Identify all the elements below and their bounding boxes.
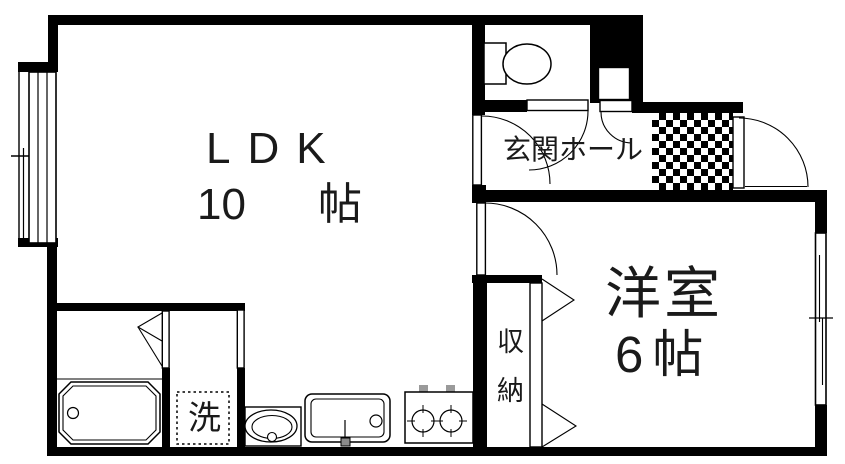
western-room-window — [809, 233, 833, 405]
bifold-door-icon — [138, 313, 162, 341]
hall-door-leaf — [473, 115, 482, 185]
wall-top — [48, 15, 643, 25]
toilet-bowl — [503, 44, 551, 84]
wall-toilet-bottom — [472, 100, 527, 112]
toilet-door-leaf — [527, 100, 588, 111]
bifold-door-fold-line — [138, 327, 162, 366]
room-size-ldk: 10 帖 — [197, 183, 362, 227]
bay-window — [11, 70, 56, 247]
bathtub-icon — [57, 379, 162, 444]
bifold-door-icon — [542, 279, 574, 321]
floor-plan-drawing — [0, 0, 845, 464]
laundry-mark: 洗 — [188, 401, 221, 434]
washbasin-drain — [268, 433, 277, 442]
closet-front-leaf — [530, 283, 542, 447]
toilet-icon — [484, 43, 551, 84]
wall-entrance-top — [632, 102, 743, 113]
sink-faucet — [370, 415, 382, 427]
wall-right-lower — [815, 405, 827, 456]
wall-bath-laundry-divider — [162, 368, 170, 447]
entrance-door-leaf — [733, 117, 744, 188]
utility-box — [598, 67, 630, 100]
room-label-western-room: 洋室 — [605, 266, 723, 322]
stove-body — [405, 392, 473, 443]
wall-laundry-right — [237, 368, 245, 447]
interior-door-swing-icon — [485, 203, 557, 275]
window-frame — [29, 72, 56, 243]
wall-bottom — [47, 447, 827, 456]
bath-door-leaf — [162, 311, 169, 368]
laundry-opening-leaf — [237, 310, 244, 368]
sink-trap — [341, 438, 350, 446]
wall-closet-top — [472, 275, 542, 283]
bathtub-outer — [59, 382, 160, 444]
washbasin-icon — [245, 407, 301, 446]
room-size-western-room: 6帖 — [615, 329, 712, 380]
room-label-entrance-hall: 玄関ホール — [503, 136, 643, 164]
wall-bay-top-cap — [18, 62, 58, 72]
room-size-ldk-value: 10 — [197, 183, 246, 227]
kitchen-sink-icon — [305, 394, 390, 446]
room-label-closet: 収納 — [494, 327, 521, 425]
entrance-door-swing-icon — [739, 118, 808, 187]
wall-bathroom-top — [57, 303, 245, 311]
room-label-ldk: LDK — [206, 127, 343, 171]
room-size-ldk-unit: 帖 — [318, 183, 362, 227]
wall-western-top — [472, 190, 827, 202]
wall-left-lower — [47, 238, 57, 456]
wall-center-seg3 — [473, 275, 487, 447]
western-door-leaf — [477, 203, 486, 275]
floor-plan: LDK 10 帖 玄関ホール 洋室 6帖 収納 洗 — [0, 0, 845, 464]
gas-stove-icon — [405, 385, 473, 443]
sliding-window-icon — [816, 233, 827, 405]
bifold-door-icon — [542, 404, 576, 447]
utility-door-leaf — [600, 101, 632, 112]
